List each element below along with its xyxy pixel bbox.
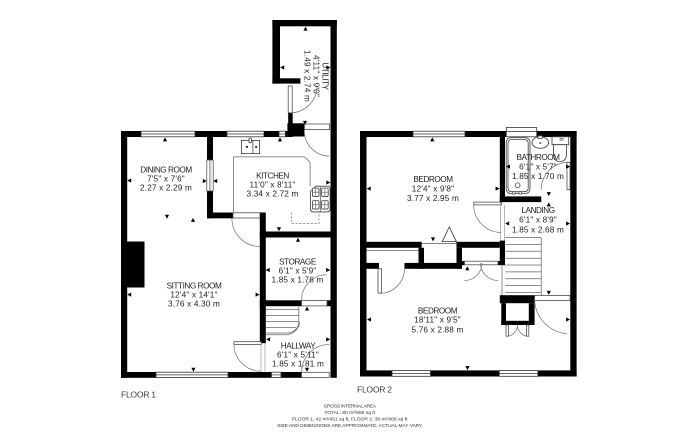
svg-text:BEDROOM: BEDROOM — [413, 175, 453, 184]
svg-text:5.76 x 2.88 m: 5.76 x 2.88 m — [412, 325, 464, 334]
svg-text:6'1" x 5'11": 6'1" x 5'11" — [277, 351, 319, 360]
svg-text:FLOOR 1: FLOOR 1 — [121, 389, 156, 399]
svg-text:STORAGE: STORAGE — [279, 257, 317, 266]
svg-text:3.76 x 4.30 m: 3.76 x 4.30 m — [168, 299, 220, 308]
svg-text:TOTAL: 80 m²/859 sq ft: TOTAL: 80 m²/859 sq ft — [324, 410, 375, 416]
svg-text:SITTING ROOM: SITTING ROOM — [167, 282, 222, 291]
svg-text:1.85 x 1.70 m: 1.85 x 1.70 m — [512, 172, 564, 181]
svg-text:FLOOR 2: FLOOR 2 — [357, 384, 392, 394]
svg-text:3.77 x 2.95 m: 3.77 x 2.95 m — [407, 194, 459, 203]
svg-text:DINING ROOM: DINING ROOM — [140, 165, 192, 174]
svg-text:11'0" x 8'11": 11'0" x 8'11" — [249, 181, 295, 190]
svg-text:7'5" x 7'6": 7'5" x 7'6" — [147, 174, 185, 183]
svg-text:1.85 x 2.68 m: 1.85 x 2.68 m — [512, 225, 564, 234]
svg-text:6'1" x 8'9": 6'1" x 8'9" — [519, 216, 557, 225]
svg-text:LANDING: LANDING — [521, 206, 554, 215]
svg-text:HALLWAY: HALLWAY — [281, 342, 316, 351]
svg-text:4'11" x 9'0": 4'11" x 9'0" — [312, 55, 321, 97]
svg-text:2.27 x 2.29 m: 2.27 x 2.29 m — [140, 183, 192, 192]
svg-text:1.85 x 1.76 m: 1.85 x 1.76 m — [272, 275, 324, 284]
svg-text:12'4" x 14'1": 12'4" x 14'1" — [170, 291, 217, 300]
svg-text:6'1" x 5'7": 6'1" x 5'7" — [519, 163, 557, 172]
svg-text:KITCHEN: KITCHEN — [256, 172, 289, 181]
svg-text:12'4" x 9'8": 12'4" x 9'8" — [412, 185, 455, 194]
svg-text:3.34 x 2.72 m: 3.34 x 2.72 m — [247, 189, 299, 198]
svg-text:FLOOR 1: 42 m²/451 sq ft, FLOO: FLOOR 1: 42 m²/451 sq ft, FLOOR 2: 38 m²… — [292, 417, 408, 423]
svg-text:BEDROOM: BEDROOM — [418, 306, 458, 315]
svg-text:1.85 x 1.81 m: 1.85 x 1.81 m — [272, 360, 324, 369]
svg-text:SIZE AND DIMENSIONS ARE APPROX: SIZE AND DIMENSIONS ARE APPROXIMATE, ACT… — [277, 423, 423, 429]
svg-text:1.49 x 2.74 m: 1.49 x 2.74 m — [303, 50, 312, 102]
svg-text:GROSS INTERNAL AREA: GROSS INTERNAL AREA — [324, 404, 377, 410]
svg-text:UTILITY: UTILITY — [321, 62, 330, 90]
svg-text:6'1" x 5'9": 6'1" x 5'9" — [279, 266, 317, 275]
svg-text:BATHROOM: BATHROOM — [516, 153, 560, 162]
svg-text:18'11" x 9'5": 18'11" x 9'5" — [414, 316, 461, 325]
